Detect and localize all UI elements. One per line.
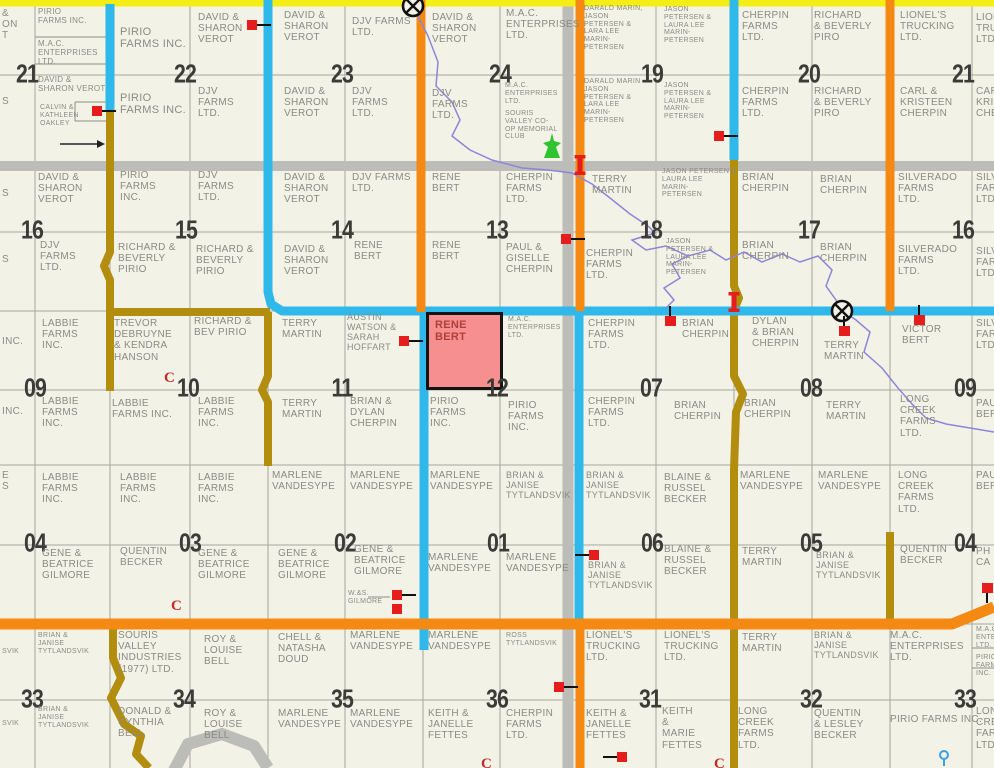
parcel-label: MARLENE VANDESYPE [430,470,493,492]
parcel-label: LABBIE FARMS INC. [42,472,79,506]
parcel-label: TERRY MARTIN [742,546,782,568]
parcel-label: SVIK [2,648,19,656]
parcel-label: LONG CREEK FARMS LTD. [898,470,934,515]
parcel-label: TERRY MARTIN [282,398,322,420]
parcel-label: DJV FARMS LTD. [352,172,411,194]
parcel-label: DAVID & SHARON VEROT [284,86,329,120]
parcel-label: BRIAN & JANISE TYTLANDSVIK [816,550,881,580]
parcel-label: LABBIE FARMS INC. [120,472,157,506]
parcel-label: BRIAN & JANISE TYTLANDSVIK [38,706,89,729]
parcel-label: W.&S. GILMORE [348,590,382,606]
parcel-label: PIRIO FARMS INC. [508,400,544,434]
parcel-label: JASON PETERSEN & LAURA LEE MARIN- PETERS… [664,6,711,45]
parcel-label: S [2,188,9,199]
parcel-label: LABBIE FARMS INC. [198,472,235,506]
flag-icon [982,583,993,593]
parcel-label: & ON T [2,8,18,42]
parcel-label: CALVIN & KATHLEEN OAKLEY [40,104,79,127]
parcel-label: MARLENE VANDESYPE [428,552,491,574]
section-number: 20 [798,58,820,89]
road-hash-icon [732,293,737,311]
c-marker: C [481,756,492,768]
building-tick [570,238,585,240]
parcel-label: BRIAN CHERPIN [820,242,867,264]
building-tick [256,24,271,26]
parcel-label: DJV FARMS LTD. [198,170,234,204]
parcel-label: MARLENE VANDESYPE [350,708,413,730]
section-number: 15 [175,214,197,245]
parcel-label: INC. [2,336,23,347]
building-icon [92,106,102,116]
parcel-label: DARALD MARIN, JASON PETERSEN & LARA LEE … [584,5,643,52]
c-marker: C [171,598,182,615]
parcel-label: BRIAN & JANISE TYTLANDSVIK [506,470,571,500]
parcel-label: SILVERADO FARMS LTD. [976,246,994,280]
parcel-label: RICHARD & BEVERLY PIRO [814,10,872,44]
parcel-label: RICHARD & BEV PIRIO [194,316,252,338]
parcel-label: BRIAN CHERPIN [674,400,721,422]
parcel-label: CHERPIN FARMS LTD. [588,318,635,352]
olive-road-v110 [104,106,110,391]
parcel-label: VICTOR BERT [902,324,941,346]
parcel-label: ROY & LOUISE BELL [204,708,242,742]
parcel-label: JASON PETERSEN & LAURA LEE MARIN- PETERS… [666,238,713,277]
section-number: 09 [954,372,976,403]
parcel-label: BRIAN CHERPIN [742,240,789,262]
road-hash-icon [729,292,740,296]
building-tick [408,340,423,342]
parcel-label: LABBIE FARMS INC. [42,318,79,352]
parcel-label: BLAINE & RUSSEL BECKER [664,472,711,506]
parcel-label: PIRIO FARMS INC. [38,8,87,26]
parcel-label: DAVID & SHARON VEROT [38,172,83,206]
parcel-label: MARLENE VANDESYPE [278,708,341,730]
section-number: 19 [641,58,663,89]
parcel-label: TERRY MARTIN [282,318,322,340]
parcel-label: QUENTIN BECKER [900,544,947,566]
parcel-label: MARLENE VANDESYPE [272,470,335,492]
parcel-label: M.A.C. ENTERPRISES LTD. [890,630,964,664]
parcel-label: CARL & KRISTEEN CHERPIN [900,86,952,120]
parcel-label: BRIAN CHERPIN [682,318,729,340]
parcel-label: DJV FARMS LTD. [198,86,234,120]
section-number: 21 [16,58,38,89]
parcel-label: MARLENE VANDESYPE [350,470,413,492]
parcel-label: LABBIE FARMS INC. [42,396,79,430]
parcel-label: M.A.C. ENTERPRISES LTD. [506,8,580,42]
parcel-label: RICHARD & BEVERLY PIRIO [118,242,176,276]
parcel-label: BRIAN & JANISE TYTLANDSVIK [814,630,879,660]
parcel-label: ROSS TYTLANDSVIK [506,632,557,648]
parcel-label: SILVERADO FARMS LTD. [898,172,957,206]
building-icon [399,336,409,346]
parcel-label: JASON PETERSEN & LAURA LEE MARIN- PETERS… [664,82,711,121]
section-number: 04 [954,527,976,558]
section-number: 34 [173,683,195,714]
parcel-label: PIRIO FARMS INC. [120,170,156,204]
parcel-label: KEITH & JANELLE FETTES [586,708,631,742]
section-number: 36 [486,683,508,714]
building-icon [589,550,599,560]
parcel-label: QUENTIN & LESLEY BECKER [814,708,864,742]
parcel-label: E S [2,470,9,492]
section-number: 17 [798,214,820,245]
parcel-label: DJV FARMS LTD. [40,240,76,274]
parcel-label: PIRIO FARMS INC. [890,714,982,725]
parcel-label: MARLENE VANDESYPE [350,630,413,652]
building-icon [617,752,627,762]
section-number: 12 [486,372,508,403]
parcel-label: CARL & KRISTEEN CHERPIN [976,86,994,120]
parcel-label: BRIAN & JANISE TYTLANDSVIK [38,632,89,655]
parcel-label: MARLENE VANDESYPE [428,630,491,652]
parcel-label: M.A.C. ENTERPRISES LTD. [505,82,558,105]
pin-icon [940,751,948,759]
section-number: 10 [177,372,199,403]
parcel-label: SOURIS VALLEY CO- OP MEMORIAL CLUB [505,110,558,141]
c-marker: C [164,370,175,387]
section-number: 14 [331,214,353,245]
parcel-label: DAVID & SHARON VEROT [38,76,106,94]
section-number: 13 [486,214,508,245]
parcel-label: SILVERADO FARMS LTD. [976,172,994,206]
parcel-label: BRIAN CHERPIN [820,174,867,196]
section-number: 06 [641,527,663,558]
section-number: 21 [952,58,974,89]
parcel-label: PIRIO FARMS INC. [120,92,186,117]
section-number: 07 [640,372,662,403]
parcel-label: PIRIO FARMS INC. [430,396,466,430]
parcel-label: CHERPIN FARMS LTD. [506,708,553,742]
c-marker: C [714,756,725,768]
parcel-label: DJV FARMS LTD. [352,86,388,120]
parcel-label: S [2,254,9,265]
parcel-label: S [2,96,9,107]
section-number: 33 [954,683,976,714]
parcel-label: DJV FARMS LTD. [352,16,411,38]
parcel-label: CHERPIN FARMS LTD. [588,396,635,430]
parcel-label: DAVID & SHARON VEROT [432,12,477,46]
road-hash-icon [575,155,586,159]
parcel-label: JASON PETERSEN & LAURA LEE MARIN- PETERS… [662,168,736,199]
parcel-label: DARALD MARIN JASON PETERSEN & LARA LEE M… [584,78,641,125]
building-tick [575,554,590,556]
parcel-label: M.A.C. ENTERPRISES LTD. [38,40,98,67]
parcel-label: SOURIS VALLEY INDUSTRIES (1977) LTD. [118,630,182,675]
parcel-label: TERRY MARTIN [824,340,864,362]
parcel-label: BRIAN & JANISE TYTLANDSVIK [588,560,653,590]
parcel-label: LABBIE FARMS INC. [198,396,235,430]
parcel-label: RENE BERT [432,172,461,194]
pointer-arrowhead [97,140,105,148]
parcel-label: CHELL & NATASHA DOUD [278,632,326,666]
building-tick [401,594,416,596]
road-hash-icon [575,172,586,176]
parcel-label: LIONEL'S TRUCKING LTD. [586,630,641,664]
parcel-label: DONALD & CYNTHIA BELL [118,706,172,740]
parcel-label: BRIAN CHERPIN [744,398,791,420]
parcel-label: SILVERADO FARMS LTD. [898,244,957,278]
parcel-label: TERRY MARTIN [592,174,632,196]
parcel-label: QUENTIN BECKER [120,546,167,568]
parcel-label: M.A.C. ENTERPRISES LTD. [976,626,994,649]
building-tick [563,686,578,688]
building-icon [714,131,724,141]
parcel-label: KEITH & JANELLE FETTES [428,708,473,742]
plat-map[interactable]: RENE BERT & ON TPIRIO FARMS INC.M.A.C. E… [0,0,994,768]
parcel-label: AUSTIN WATSON & SARAH HOFFART [347,312,396,352]
parcel-label: PAUL BERT [976,398,994,420]
parcel-label: PIRIO FARMS INC. [976,654,994,677]
building-tick [723,135,738,137]
parcel-label: CHERPIN FARMS LTD. [586,248,633,282]
parcel-label: GENE & BEATRICE GILMORE [354,544,406,578]
building-icon [392,604,402,614]
flag-icon [665,316,676,326]
parcel-label: SILVERADO FARMS LTD. [976,318,994,352]
section-number: 23 [331,58,353,89]
section-number: 18 [640,214,662,245]
building-icon [247,20,257,30]
building-icon [561,234,571,244]
parcel-label: LIONEL'S TRUCKING LTD. [664,630,719,664]
parcel-label: LONG CREEK FARMS LTD. [976,706,994,751]
parcel-label: LONG CREEK FARMS LTD. [900,394,936,439]
parcel-label: RICHARD & BEVERLY PIRO [814,86,872,120]
parcel-label: RENE BERT [432,240,461,262]
parcel-label: PAUL BERT [976,470,994,492]
building-tick [603,756,618,758]
section-number: 16 [952,214,974,245]
flag-icon [839,326,850,336]
parcel-label: M.A.C. ENTERPRISES LTD. [508,316,561,339]
section-number: 08 [800,372,822,403]
parcel-label: CHERPIN FARMS LTD. [506,172,553,206]
parcel-label: BRIAN & JANISE TYTLANDSVIK [586,470,651,500]
parcel-label: DAVID & SHARON VEROT [198,12,243,46]
section-number: 02 [334,527,356,558]
section-number: 31 [639,683,661,714]
parcel-label: GENE & BEATRICE GILMORE [198,548,250,582]
olive-road-v268 [262,312,268,466]
flag-stem [986,592,988,603]
section-number: 22 [174,58,196,89]
parcel-label: DAVID & SHARON VEROT [284,172,329,206]
parcel-label: PH CA [976,546,991,568]
parcel-label: TERRY MARTIN [742,632,782,654]
road-hash-icon [578,156,583,174]
parcel-label: DAVID & SHARON VEROT [284,244,329,278]
parcel-label: GENE & BEATRICE GILMORE [278,548,330,582]
parcel-label: MARLENE VANDESYPE [818,470,881,492]
parcel-label: RENE BERT [354,240,383,262]
parcel-label: KEITH & MARIE FETTES [662,706,702,751]
parcel-label: GENE & BEATRICE GILMORE [42,548,94,582]
parcel-label: CHERPIN FARMS LTD. [742,10,789,44]
parcel-label: INC. [2,406,23,417]
parcel-label: DAVID & SHARON VEROT [284,10,329,44]
parcel-label: DYLAN & BRIAN CHERPIN [752,316,799,350]
parcel-label: LIONEL'S TRUCKING LTD. [976,12,994,46]
parcel-label: LABBIE FARMS INC. [112,398,172,420]
parcel-label: CHERPIN FARMS LTD. [742,86,789,120]
parcel-label: SVIK [2,720,19,728]
parcel-label: BRIAN CHERPIN [742,172,789,194]
parcel-label: BLAINE & RUSSEL BECKER [664,544,711,578]
parcel-label: LONG CREEK FARMS LTD. [738,706,774,751]
parcel-label: PIRIO FARMS INC. [120,26,186,51]
building-icon [554,682,564,692]
parcel-label: TERRY MARTIN [826,400,866,422]
building-icon [392,590,402,600]
parcel-label: MARLENE VANDESYPE [740,470,803,492]
building-tick [101,110,116,112]
orange-road-h [0,607,994,624]
parcel-label: TREVOR DEBRUYNE & KENDRA HANSON [114,318,172,363]
well-icon [403,0,423,16]
parcel-label: MARLENE VANDESYPE [506,552,569,574]
parcel-label: DJV FARMS LTD. [432,88,468,122]
parcel-label: ROY & LOUISE BELL [204,634,242,668]
highlight-parcel-owner: RENE BERT [435,319,467,344]
parcel-label: LIONEL'S TRUCKING LTD. [900,10,955,44]
parcel-label: BRIAN & DYLAN CHERPIN [350,396,397,430]
parcel-label: PAUL & GISELLE CHERPIN [506,242,553,276]
parcel-label: RICHARD & BEVERLY PIRIO [196,244,254,278]
flag-icon [914,315,925,325]
road-hash-icon [729,309,740,313]
